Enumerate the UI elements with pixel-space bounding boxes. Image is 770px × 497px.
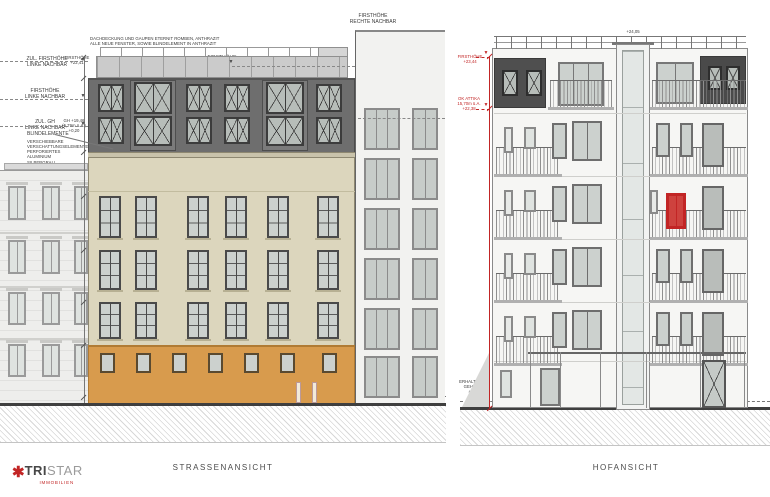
ref-hof-attika xyxy=(476,109,490,110)
window-pane xyxy=(366,260,376,298)
window-pane xyxy=(426,110,437,148)
window-pane xyxy=(210,355,221,371)
shop-window xyxy=(100,353,115,373)
cream-window xyxy=(225,250,247,290)
hof-roof-rail-post xyxy=(661,36,662,49)
cream-string-course xyxy=(88,191,355,192)
window-pane xyxy=(366,310,376,348)
balcony-slab-right xyxy=(650,300,748,303)
window-pane xyxy=(528,72,540,94)
logo-text-light: STAR xyxy=(47,463,83,478)
hof-door-right xyxy=(702,123,724,167)
balcony-slab-left xyxy=(494,237,562,240)
level-mark: ▼ xyxy=(80,94,86,100)
cream-window-sill xyxy=(97,290,123,292)
window-pane xyxy=(366,358,376,396)
hof-roof-rail-post xyxy=(586,36,587,49)
ref-zul-gh-linke xyxy=(0,126,88,127)
window-pane xyxy=(10,242,17,272)
roof-rail-post xyxy=(163,47,164,56)
neighbor-left-window xyxy=(8,292,26,325)
window-pane xyxy=(554,188,565,220)
hof-window-narrow2 xyxy=(650,190,658,214)
roof-rail-post xyxy=(121,47,122,56)
window-pane xyxy=(388,160,398,198)
balcony-slab-right xyxy=(650,174,748,177)
window-pane xyxy=(237,252,246,288)
window-pane xyxy=(526,192,534,210)
cream-window xyxy=(225,196,247,238)
window-pane xyxy=(282,355,293,371)
window-pane xyxy=(319,304,328,337)
window-pane xyxy=(682,125,691,155)
roof-terrace-band xyxy=(96,56,348,78)
neighbor-left-lintel xyxy=(6,236,28,239)
window-pane xyxy=(268,84,285,112)
window-pane xyxy=(44,294,51,323)
hof-balcony-door xyxy=(572,247,602,287)
cream-window-sill xyxy=(97,238,123,240)
shop-window xyxy=(208,353,223,373)
window-pane xyxy=(189,198,198,236)
cream-window xyxy=(267,250,289,290)
attic-window xyxy=(316,84,342,112)
canopy-post xyxy=(744,352,745,408)
window-pane xyxy=(200,86,211,110)
level-mark: ▼ xyxy=(80,122,86,128)
side-wall-wedge xyxy=(462,351,490,407)
eg-door-right xyxy=(702,360,726,408)
canopy-post xyxy=(600,352,601,408)
cream-window xyxy=(99,302,121,339)
ref-hof-firsthoehe xyxy=(476,57,490,58)
window-pane xyxy=(526,255,534,273)
cream-window xyxy=(99,196,121,238)
hof-window xyxy=(680,123,693,157)
neighbor-right-window xyxy=(364,108,400,150)
neighbor-right-window xyxy=(364,258,400,300)
window-pane xyxy=(554,314,565,346)
window-pane xyxy=(554,251,565,283)
window-pane xyxy=(506,192,511,214)
window-pane xyxy=(377,358,387,396)
hof-window-small xyxy=(524,190,536,212)
label-lift-dimension: +24,05 xyxy=(614,29,652,34)
window-pane xyxy=(652,192,656,212)
window-pane xyxy=(200,119,211,142)
cream-window-sill xyxy=(223,290,249,292)
window-pane xyxy=(10,346,17,375)
balcony-slab-left xyxy=(494,300,562,303)
window-pane xyxy=(658,314,668,344)
hof-window xyxy=(552,123,567,159)
cream-window xyxy=(267,196,289,238)
window-pane xyxy=(52,294,59,323)
window-pane xyxy=(426,210,437,248)
window-pane xyxy=(279,304,288,337)
ground-line-left xyxy=(0,403,446,406)
window-pane xyxy=(574,249,587,285)
cream-window xyxy=(187,302,209,339)
neighbor-left-window xyxy=(74,292,88,325)
attic-window xyxy=(224,117,250,144)
window-pane xyxy=(44,188,51,218)
window-pane xyxy=(704,125,722,165)
window-pane xyxy=(377,110,387,148)
neighbor-left-window xyxy=(8,344,26,377)
window-pane xyxy=(101,304,110,337)
neighbor-left-lintel xyxy=(40,288,62,291)
window-pane xyxy=(330,86,341,110)
caption-strassenansicht: STRASSENANSICHT xyxy=(148,463,298,472)
logo-text-bold: TRI xyxy=(25,463,47,478)
shop-window xyxy=(244,353,259,373)
ref-gh-rechte xyxy=(358,118,445,119)
window-pane xyxy=(682,314,691,344)
label-verschattung: VERSCHIEBBARE VERSCHATTUNGSELEMENTE PERF… xyxy=(27,139,83,165)
window-pane xyxy=(388,210,398,248)
window-pane xyxy=(426,310,437,348)
roof-rail-post xyxy=(142,47,143,56)
attic-balcony-slab xyxy=(548,107,614,110)
attic-window xyxy=(224,84,250,112)
hof-window-small xyxy=(524,127,536,149)
window-pane xyxy=(18,242,25,272)
hof-roof-rail-post xyxy=(721,36,722,49)
window-pane xyxy=(414,310,425,348)
roof-rail-line xyxy=(100,47,318,48)
window-pane xyxy=(414,110,425,148)
cream-window-sill xyxy=(185,339,211,341)
window-pane xyxy=(111,198,120,236)
attic-window xyxy=(98,84,124,112)
cream-window xyxy=(187,196,209,238)
window-pane xyxy=(414,210,425,248)
attic-balcony-slab2 xyxy=(650,107,748,110)
attic-balcony-rail xyxy=(550,80,612,108)
window-pane xyxy=(388,110,398,148)
window-pane xyxy=(366,160,376,198)
window-pane xyxy=(319,252,328,288)
caption-hofansicht: HOFANSICHT xyxy=(556,463,696,472)
label-firsthoehe-rechte: FIRSTHÖHE RECHTE NACHBAR xyxy=(348,13,398,25)
cream-window-sill xyxy=(223,238,249,240)
window-pane xyxy=(136,84,153,112)
roof-rail-post xyxy=(226,47,227,56)
hof-roof-rail-post xyxy=(691,36,692,49)
window-pane xyxy=(76,188,81,218)
label-hof-firsthoehe: FIRSTHÖHE +23,44 xyxy=(454,54,486,64)
cream-window-sill xyxy=(315,238,341,240)
window-pane xyxy=(329,198,338,236)
neighbor-left-window xyxy=(8,240,26,274)
window-pane xyxy=(246,355,257,371)
window-pane xyxy=(269,304,278,337)
window-pane xyxy=(189,304,198,337)
ref-zul-firsthoehe xyxy=(0,61,88,62)
neighbor-right-window xyxy=(412,308,438,350)
hof-roof-rail-top xyxy=(494,36,746,37)
balcony-slab-left xyxy=(494,174,562,177)
window-pane xyxy=(238,119,249,142)
cream-window xyxy=(317,302,339,339)
window-pane xyxy=(318,86,329,110)
window-pane xyxy=(199,198,208,236)
hof-window-narrow xyxy=(504,190,513,216)
cream-facade xyxy=(88,158,355,345)
window-pane xyxy=(426,160,437,198)
roof-box-right xyxy=(318,47,348,57)
note-roof-materials: DACHDECKUNG UND GAUPEN ETERNIT ROMBEN, A… xyxy=(90,36,250,46)
window-pane xyxy=(101,198,110,236)
window-pane xyxy=(174,355,185,371)
hof-balcony-door xyxy=(572,184,602,224)
window-pane xyxy=(112,119,123,142)
hof-roof-rail-post xyxy=(676,36,677,49)
tristar-logo: ✱TRISTAR IMMOBILIEN xyxy=(12,462,92,485)
hof-balcony-door xyxy=(572,310,602,350)
window-pane xyxy=(10,294,17,323)
cream-window-sill xyxy=(265,238,291,240)
window-pane xyxy=(268,118,285,144)
window-pane xyxy=(137,252,146,288)
hof-door-right xyxy=(702,249,724,293)
attic-window xyxy=(266,116,304,146)
neighbor-left-lintel xyxy=(40,340,62,343)
ref-firsthoehe-linke xyxy=(0,99,88,100)
roof-rail-post xyxy=(268,47,269,56)
window-pane xyxy=(286,84,303,112)
window-pane xyxy=(574,312,587,348)
window-pane xyxy=(44,346,51,375)
star-icon: ✱ xyxy=(12,464,25,481)
neighbor-right-window xyxy=(412,356,438,398)
cream-window xyxy=(267,302,289,339)
window-pane xyxy=(18,346,25,375)
hof-window-narrow xyxy=(504,253,513,279)
cream-window-sill xyxy=(133,290,159,292)
shop-window xyxy=(322,353,337,373)
canopy-post xyxy=(700,352,701,408)
window-pane xyxy=(137,198,146,236)
neighbor-left-window xyxy=(42,344,60,377)
roof-rail-post xyxy=(100,47,101,56)
window-pane xyxy=(111,252,120,288)
hof-window xyxy=(680,312,693,346)
window-pane xyxy=(147,198,156,236)
shop-pillar xyxy=(296,382,301,403)
window-pane xyxy=(330,119,341,142)
neighbor-left-cornice xyxy=(0,232,88,234)
neighbor-left-window xyxy=(74,186,88,220)
window-pane xyxy=(414,160,425,198)
window-pane xyxy=(426,358,437,396)
neighbor-right-window xyxy=(364,208,400,250)
neighbor-right-window xyxy=(364,356,400,398)
cream-window-sill xyxy=(315,290,341,292)
dormer-window xyxy=(502,70,518,96)
shop-window xyxy=(172,353,187,373)
hof-window xyxy=(656,312,670,346)
window-pane xyxy=(112,86,123,110)
window-pane xyxy=(506,318,511,340)
neighbor-left-window xyxy=(74,240,88,274)
window-pane xyxy=(138,355,149,371)
attic-window xyxy=(98,117,124,144)
window-pane xyxy=(704,362,724,406)
window-pane xyxy=(377,260,387,298)
window-pane xyxy=(377,310,387,348)
ref-neighbor-top xyxy=(396,31,445,32)
hof-window xyxy=(552,186,567,222)
neighbor-left-lintel xyxy=(6,288,28,291)
window-pane xyxy=(147,252,156,288)
attic-balcony-rail2 xyxy=(652,80,746,108)
window-pane xyxy=(154,118,171,144)
neighbor-left-window xyxy=(8,186,26,220)
window-pane xyxy=(366,110,376,148)
hof-roof-rail-post xyxy=(571,36,572,49)
window-pane xyxy=(542,370,558,404)
neighbor-left-lintel xyxy=(6,340,28,343)
cream-window xyxy=(135,302,157,339)
cream-window-sill xyxy=(265,290,291,292)
changed-door-highlight xyxy=(667,194,685,228)
window-pane xyxy=(136,118,153,144)
window-pane xyxy=(682,251,691,281)
window-pane xyxy=(286,118,303,144)
canopy-post xyxy=(560,352,561,408)
window-pane xyxy=(52,346,59,375)
roof-rail-post xyxy=(310,47,311,56)
roof-rail-post xyxy=(247,47,248,56)
window-pane xyxy=(227,198,236,236)
neighbor-left-lintel xyxy=(40,236,62,239)
cream-window xyxy=(99,250,121,290)
neighbor-left-window xyxy=(42,186,60,220)
hof-window xyxy=(680,249,693,283)
window-pane xyxy=(269,198,278,236)
window-pane xyxy=(414,358,425,396)
roof-rail-post xyxy=(205,47,206,56)
eg-window xyxy=(500,370,512,398)
attic-window xyxy=(186,84,212,112)
cream-window-sill xyxy=(185,238,211,240)
hof-window xyxy=(552,249,567,285)
window-pane xyxy=(377,160,387,198)
roof-rail-post xyxy=(184,47,185,56)
ground-hatch-left xyxy=(0,406,446,443)
window-pane xyxy=(588,312,601,348)
window-pane xyxy=(588,249,601,285)
neighbor-left-roofcap xyxy=(4,163,88,170)
hof-roof-rail-post xyxy=(526,36,527,49)
dim-line-left xyxy=(84,57,85,403)
ground-hatch-right xyxy=(460,410,770,446)
window-pane xyxy=(102,355,113,371)
window-pane xyxy=(554,125,565,157)
hof-window-small xyxy=(524,253,536,275)
cream-window xyxy=(225,302,247,339)
window-pane xyxy=(502,372,510,396)
floor-slab-line xyxy=(494,113,746,114)
window-pane xyxy=(76,294,81,323)
window-pane xyxy=(504,72,516,94)
shop-window xyxy=(280,353,295,373)
neighbor-right-window xyxy=(412,158,438,200)
window-pane xyxy=(76,346,81,375)
window-pane xyxy=(414,260,425,298)
balcony-slab-right xyxy=(650,363,748,366)
level-mark: ▼ xyxy=(228,60,234,66)
window-pane xyxy=(318,119,329,142)
hof-roof-rail-post xyxy=(496,36,497,49)
window-pane xyxy=(101,252,110,288)
neighbor-right-window xyxy=(412,208,438,250)
eg-door-left xyxy=(540,368,560,406)
dormer-window xyxy=(526,70,542,96)
hof-window-small xyxy=(524,316,536,338)
window-pane xyxy=(324,355,335,371)
window-pane xyxy=(279,198,288,236)
cream-window xyxy=(187,250,209,290)
architectural-sheet: DACHDECKUNG UND GAUPEN ETERNIT ROMBEN, A… xyxy=(0,0,770,497)
window-pane xyxy=(226,119,237,142)
window-pane xyxy=(526,129,534,147)
neighbor-left-lintel xyxy=(40,182,62,185)
window-pane xyxy=(137,304,146,337)
window-pane xyxy=(199,304,208,337)
hof-roof-rail-post xyxy=(541,36,542,49)
window-pane xyxy=(377,210,387,248)
window-pane xyxy=(44,242,51,272)
hof-window xyxy=(552,312,567,348)
attic-window xyxy=(266,82,304,114)
hof-roof-rail-post xyxy=(736,36,737,49)
window-pane xyxy=(388,310,398,348)
cream-window-sill xyxy=(315,339,341,341)
hof-balcony-door xyxy=(572,121,602,161)
window-pane xyxy=(574,123,587,159)
window-pane xyxy=(237,304,246,337)
window-pane xyxy=(238,86,249,110)
attic-window xyxy=(316,117,342,144)
window-pane xyxy=(329,304,338,337)
attic-window xyxy=(186,117,212,144)
window-pane xyxy=(658,251,668,281)
neighbor-right-window xyxy=(412,258,438,300)
window-pane xyxy=(574,186,587,222)
cream-window-sill xyxy=(133,238,159,240)
window-pane xyxy=(426,260,437,298)
neighbor-right-window xyxy=(412,108,438,150)
neighbor-left-lintel xyxy=(6,182,28,185)
window-pane xyxy=(111,304,120,337)
shop-pillar xyxy=(312,382,317,403)
cream-window xyxy=(135,250,157,290)
hof-roof-rail-post xyxy=(556,36,557,49)
window-pane xyxy=(227,304,236,337)
window-pane xyxy=(658,125,668,155)
cream-window-sill xyxy=(265,339,291,341)
hof-window xyxy=(656,249,670,283)
window-pane xyxy=(76,242,81,272)
window-pane xyxy=(319,198,328,236)
level-mark: ▼ xyxy=(80,58,86,64)
window-pane xyxy=(269,252,278,288)
window-pane xyxy=(388,260,398,298)
window-pane xyxy=(199,252,208,288)
